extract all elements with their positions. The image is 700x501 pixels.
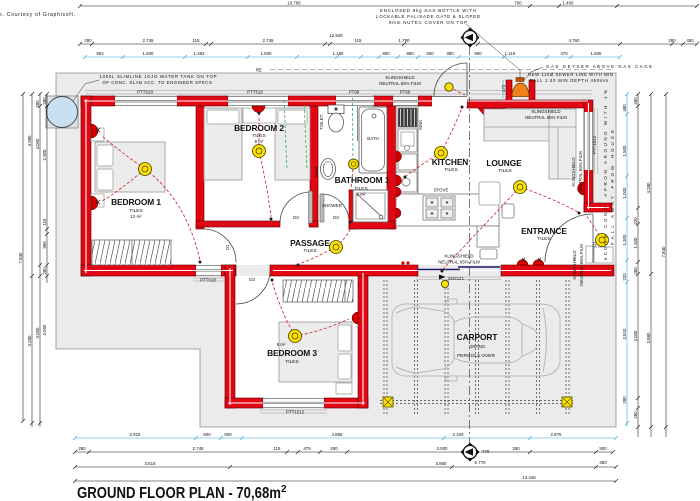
- svg-text:NEUTRAL 65% FILM: NEUTRAL 65% FILM: [579, 244, 584, 286]
- svg-text:480: 480: [622, 104, 627, 112]
- svg-text:PASSAGE: PASSAGE: [290, 238, 330, 248]
- svg-text:985: 985: [42, 241, 47, 249]
- svg-text:2.915: 2.915: [130, 432, 142, 437]
- svg-text:12 m²: 12 m²: [130, 214, 142, 219]
- svg-text:220: 220: [633, 217, 638, 225]
- svg-text:9mm NUTEC COVER ON TOP: 9mm NUTEC COVER ON TOP: [389, 20, 467, 25]
- svg-text:3.000: 3.000: [633, 330, 638, 342]
- svg-text:KLINGSHIELD: KLINGSHIELD: [571, 157, 576, 186]
- svg-text:KLINGSHIELD: KLINGSHIELD: [572, 250, 577, 279]
- svg-text:5 m²: 5 m²: [357, 192, 366, 197]
- svg-text:9 m²: 9 m²: [277, 342, 286, 347]
- svg-text:1.500: 1.500: [622, 145, 627, 157]
- svg-text:280: 280: [42, 97, 47, 105]
- svg-text:SINK: SINK: [418, 120, 423, 130]
- svg-text:BATHROOM 1: BATHROOM 1: [335, 175, 390, 185]
- svg-text:1.605: 1.605: [591, 51, 603, 56]
- svg-text:PT69: PT69: [400, 90, 411, 95]
- svg-text:TILES: TILES: [537, 236, 550, 242]
- svg-text:GRANO: GRANO: [469, 344, 486, 349]
- svg-text:PT99: PT99: [349, 90, 360, 95]
- svg-text:ENTRANCE: ENTRANCE: [521, 226, 567, 236]
- svg-text:3.000: 3.000: [437, 446, 449, 451]
- svg-text:280: 280: [668, 38, 676, 43]
- svg-text:2.745: 2.745: [143, 38, 155, 43]
- svg-text:450: 450: [599, 460, 607, 465]
- svg-text:7.840: 7.840: [18, 252, 23, 264]
- svg-text:4.855: 4.855: [332, 432, 344, 437]
- svg-text:D3: D3: [249, 277, 255, 282]
- svg-text:1.400: 1.400: [563, 1, 575, 6]
- svg-text:FALL 1:40 MIN DEPTH 450mm: FALL 1:40 MIN DEPTH 450mm: [530, 78, 608, 83]
- svg-text:NEUTRAL 65% FILM: NEUTRAL 65% FILM: [525, 115, 567, 120]
- svg-text:NEW 110Ø SEWER LINE WITH MIN: NEW 110Ø SEWER LINE WITH MIN: [528, 72, 613, 77]
- svg-text:NEUTRAL 65% FILM: NEUTRAL 65% FILM: [438, 260, 480, 265]
- svg-text:4.280: 4.280: [646, 182, 651, 194]
- svg-text:PTT618: PTT618: [137, 90, 153, 95]
- svg-text:115: 115: [42, 218, 47, 226]
- svg-text:BEDROOM 1: BEDROOM 1: [111, 197, 161, 207]
- svg-text:8 m²: 8 m²: [255, 139, 264, 144]
- svg-text:WHB: WHB: [314, 167, 319, 177]
- svg-text:1.500: 1.500: [143, 51, 155, 56]
- svg-text:KITCHEN: KITCHEN: [432, 157, 469, 167]
- svg-text:1.000: 1.000: [622, 187, 627, 199]
- svg-text:4.000: 4.000: [35, 138, 40, 150]
- svg-text:902: 902: [96, 51, 104, 56]
- svg-text:TILES: TILES: [285, 359, 298, 365]
- svg-text:3.880: 3.880: [646, 332, 651, 344]
- svg-text:380: 380: [446, 51, 454, 56]
- svg-text:NEUTRAL 65% FILM: NEUTRAL 65% FILM: [578, 151, 583, 193]
- svg-text:3.280: 3.280: [27, 335, 32, 347]
- svg-text:2.745: 2.745: [193, 446, 205, 451]
- svg-text:2: 2: [281, 484, 287, 495]
- svg-text:SHOWER: SHOWER: [322, 203, 342, 208]
- svg-text:BATH: BATH: [367, 136, 378, 141]
- svg-text:PERGOLA OVER: PERGOLA OVER: [457, 353, 495, 359]
- svg-text:PTT1512: PTT1512: [286, 410, 305, 415]
- svg-text:980: 980: [406, 51, 414, 56]
- svg-text:280: 280: [78, 446, 86, 451]
- svg-text:3.615: 3.615: [145, 461, 157, 466]
- svg-text:770: 770: [482, 449, 490, 454]
- svg-text:3.000: 3.000: [35, 327, 40, 339]
- svg-text:BEDROOM 2: BEDROOM 2: [234, 123, 284, 133]
- svg-text:PTT618: PTT618: [200, 278, 216, 283]
- svg-text:700: 700: [514, 1, 522, 6]
- svg-text:PTT1512: PTT1512: [592, 135, 597, 154]
- svg-text:10.785: 10.785: [287, 1, 301, 6]
- svg-text:470: 470: [501, 84, 506, 92]
- svg-text:280: 280: [633, 97, 638, 105]
- svg-text:900: 900: [382, 51, 390, 56]
- svg-text:RE: RE: [256, 68, 262, 73]
- svg-text:TILES: TILES: [303, 248, 316, 254]
- svg-text:5 770: 5 770: [475, 460, 487, 465]
- svg-text:TILES: TILES: [444, 167, 457, 173]
- svg-text:D1: D1: [592, 241, 597, 247]
- svg-text:600: 600: [203, 432, 211, 437]
- svg-text:4.760: 4.760: [569, 38, 581, 43]
- svg-text:OF CONC. SLAB ACC. TO ENGINEER: OF CONC. SLAB ACC. TO ENGINEER SPECS.: [103, 80, 214, 85]
- svg-text:SO2121: SO2121: [448, 276, 465, 281]
- svg-text:D3: D3: [293, 215, 299, 220]
- svg-text:2.900: 2.900: [42, 149, 47, 161]
- svg-text:280: 280: [35, 100, 40, 108]
- svg-text:ENCLOSED 9kg GAS BOTTLE WITH: ENCLOSED 9kg GAS BOTTLE WITH: [380, 8, 476, 13]
- svg-text:600: 600: [426, 51, 434, 56]
- svg-text:1.115: 1.115: [505, 51, 516, 56]
- svg-text:D3: D3: [333, 215, 339, 220]
- svg-text:13.445: 13.445: [522, 475, 536, 480]
- svg-text:280: 280: [42, 267, 47, 275]
- svg-text:280: 280: [633, 411, 638, 419]
- svg-text:4.980: 4.980: [27, 135, 32, 147]
- svg-text:D1: D1: [225, 244, 230, 250]
- svg-text:1.300: 1.300: [622, 234, 627, 246]
- svg-text:470: 470: [560, 51, 568, 56]
- svg-text:GAS GEYSER ABOVE GAS CAGE: GAS GEYSER ABOVE GAS CAGE: [546, 64, 652, 69]
- svg-text:12.945: 12.945: [329, 33, 343, 38]
- svg-text:1.383: 1.383: [194, 51, 206, 56]
- svg-text:e. Courtesy of Graphisoft.: e. Courtesy of Graphisoft.: [0, 12, 75, 18]
- svg-text:3.810: 3.810: [622, 328, 627, 340]
- svg-text:KLINGSHIELD: KLINGSHIELD: [444, 254, 473, 259]
- svg-text:LOCKABLE PALISADE GATE & SLOPE: LOCKABLE PALISADE GATE & SLOPED: [376, 14, 480, 19]
- svg-text:STOVE: STOVE: [434, 188, 449, 193]
- svg-text:500: 500: [224, 432, 232, 437]
- svg-text:GROUND FLOOR PLAN - 70,68m: GROUND FLOOR PLAN - 70,68m: [77, 485, 281, 501]
- svg-text:280: 280: [330, 446, 338, 451]
- svg-text:TOILET.: TOILET.: [319, 114, 324, 130]
- svg-text:CARPORT: CARPORT: [457, 332, 499, 342]
- svg-text:NEUTRAL 65% FILM: NEUTRAL 65% FILM: [379, 81, 421, 86]
- svg-text:115: 115: [274, 446, 282, 451]
- svg-text:LOUNGE: LOUNGE: [486, 158, 522, 168]
- svg-text:2.100: 2.100: [453, 432, 465, 437]
- svg-text:7.840: 7.840: [661, 246, 666, 258]
- svg-text:1.180: 1.180: [333, 51, 345, 56]
- svg-text:220: 220: [622, 273, 627, 281]
- svg-text:BEDROOM 3: BEDROOM 3: [267, 348, 317, 358]
- svg-text:1000L SLIMLINE JOJO WATER TANK: 1000L SLIMLINE JOJO WATER TANK ON TOP: [100, 74, 217, 79]
- svg-text:KLINGSHIELD: KLINGSHIELD: [385, 75, 414, 80]
- svg-text:280: 280: [622, 396, 627, 404]
- svg-text:PTT618: PTT618: [247, 90, 263, 95]
- svg-text:475: 475: [303, 446, 311, 451]
- svg-text:900: 900: [474, 51, 482, 56]
- svg-text:280: 280: [84, 38, 92, 43]
- svg-text:115: 115: [355, 38, 363, 43]
- svg-text:500: 500: [599, 446, 607, 451]
- svg-text:3.000: 3.000: [42, 324, 47, 336]
- svg-text:1.300: 1.300: [633, 237, 638, 249]
- svg-text:2.875: 2.875: [551, 432, 563, 437]
- svg-text:KLINGSHIELD: KLINGSHIELD: [531, 109, 560, 114]
- svg-text:3.860: 3.860: [436, 461, 448, 466]
- svg-text:1.790: 1.790: [399, 38, 411, 43]
- svg-text:115: 115: [193, 38, 201, 43]
- svg-text:450: 450: [686, 38, 694, 43]
- svg-text:TILES: TILES: [498, 168, 511, 174]
- svg-text:280: 280: [633, 267, 638, 275]
- svg-text:280: 280: [512, 446, 520, 451]
- svg-text:1.500: 1.500: [261, 51, 273, 56]
- svg-text:2.745: 2.745: [263, 38, 275, 43]
